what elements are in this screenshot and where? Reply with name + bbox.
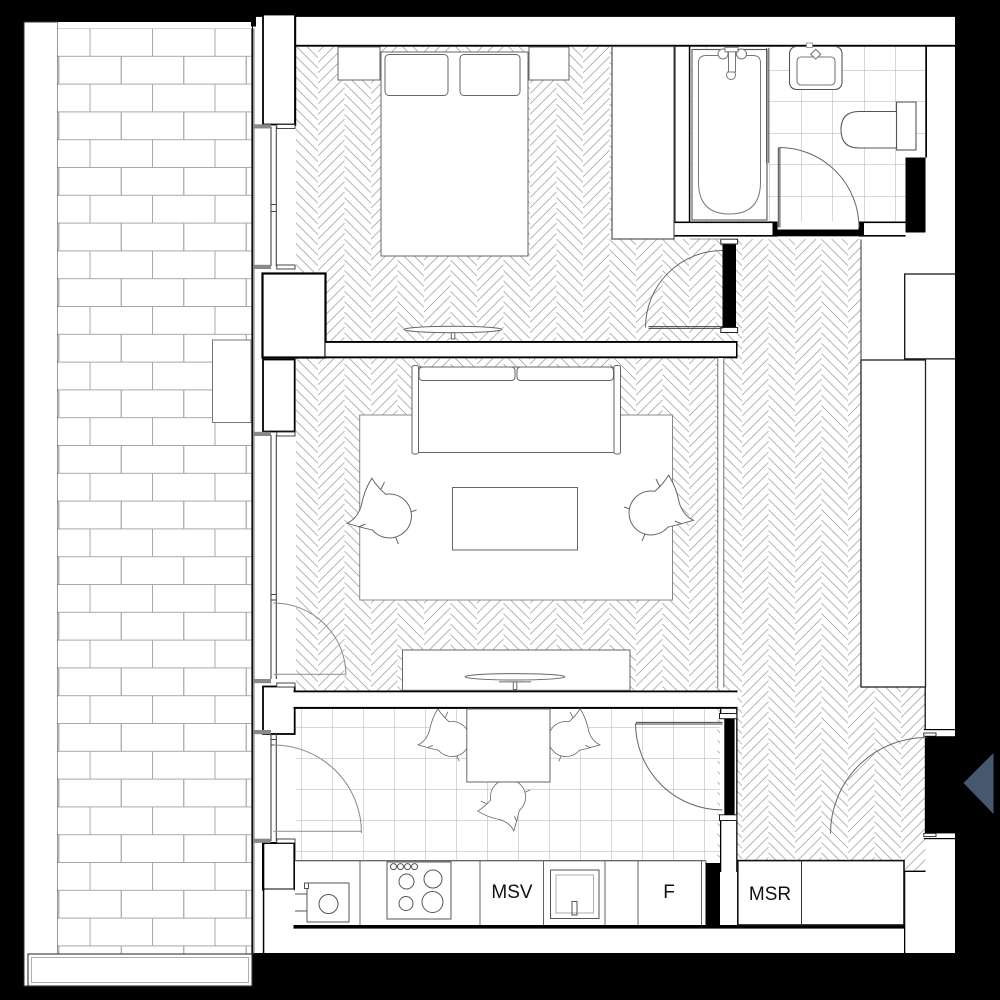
- svg-text:F: F: [663, 882, 675, 903]
- svg-text:MSV: MSV: [491, 882, 533, 903]
- svg-text:MSR: MSR: [749, 884, 791, 905]
